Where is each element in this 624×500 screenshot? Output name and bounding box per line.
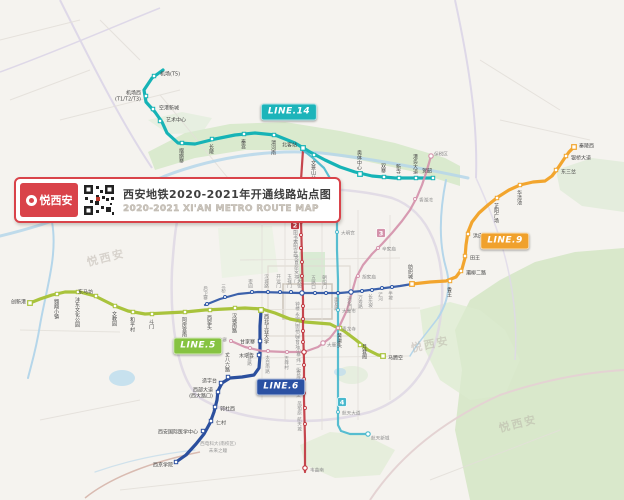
station-label: 半坡 xyxy=(388,290,393,302)
map-title-cn: 西安地铁2020-2021年开通线路站点图 xyxy=(123,186,331,202)
station-marker xyxy=(290,291,293,294)
station-label: 钟楼 xyxy=(295,300,300,312)
station-label: 阿房宫南 xyxy=(181,316,187,337)
station-marker xyxy=(371,289,374,292)
station-label: 空港新城 xyxy=(159,105,179,112)
station-label: 安远门 xyxy=(294,268,299,284)
station-label: 长陵 xyxy=(208,143,214,155)
station-marker xyxy=(233,306,236,309)
station-label: 太白南路 xyxy=(265,354,270,375)
station-label: 科技路 xyxy=(247,351,252,367)
station-marker xyxy=(302,350,306,354)
station-marker xyxy=(158,119,161,122)
station-marker xyxy=(337,309,340,312)
station-marker xyxy=(303,466,307,470)
station-label: 双寨 xyxy=(380,163,386,173)
station-label: 甘家寨 xyxy=(240,339,255,346)
metro-map-page: 机场(T5)机场西(T1/T2/T3)空港新城艺术中心摆旗寨长陵秦宫渭河南北客站… xyxy=(0,0,624,500)
station-label: 秦陵西 xyxy=(579,143,594,150)
station-marker xyxy=(336,231,339,234)
station-marker xyxy=(302,330,305,333)
station-marker xyxy=(113,304,116,307)
watermark-text: 悦西安 xyxy=(85,246,126,269)
station-label: 港务大道 xyxy=(412,153,418,175)
station-marker xyxy=(325,292,328,295)
banner-titles: 西安地铁2020-2021年开通线路站点图 2020-2021 XI'AN ME… xyxy=(123,186,331,214)
station-marker xyxy=(358,172,363,177)
station-label: 北客站 xyxy=(282,142,297,149)
station-label: 东马坊 xyxy=(78,289,93,296)
station-label: 大明宫 xyxy=(341,230,355,237)
qr-code-icon xyxy=(82,183,116,217)
station-marker xyxy=(28,301,33,306)
map-title-en: 2020-2021 XI'AN METRO ROUTE MAP xyxy=(123,204,331,214)
station-marker xyxy=(94,294,97,297)
station-label: 浐河 xyxy=(378,291,383,302)
station-label: 香湖湾 xyxy=(419,197,433,204)
station-label: 青龙寺 xyxy=(342,326,356,333)
station-marker xyxy=(267,350,270,353)
station-label: 辛家庙 xyxy=(382,246,396,253)
station-label: 保税区 xyxy=(434,151,448,158)
station-label: 枣园 xyxy=(248,278,253,290)
station-label: 小寨 xyxy=(296,346,301,357)
station-label: 香王 xyxy=(446,286,452,297)
line-label-5: LINE.5 xyxy=(173,338,222,355)
station-label: 秦宫 xyxy=(240,138,246,150)
station-marker xyxy=(304,407,307,410)
station-marker xyxy=(414,176,417,179)
station-marker xyxy=(272,133,275,136)
station-marker xyxy=(55,292,58,295)
station-marker xyxy=(301,261,304,264)
station-marker xyxy=(429,154,433,158)
station-label: 西安国际医学中心 xyxy=(158,429,198,436)
station-label: 汉城路 xyxy=(264,273,269,289)
station-marker xyxy=(226,375,229,378)
station-marker xyxy=(224,296,227,299)
station-marker xyxy=(300,234,303,237)
station-label: 西北工业大学 xyxy=(263,314,269,344)
station-marker xyxy=(213,405,216,408)
station-label: 汉城南路 xyxy=(231,312,237,334)
station-label: 文教园 xyxy=(111,310,117,327)
station-marker xyxy=(300,247,303,250)
station-marker xyxy=(382,175,385,178)
station-label: 郭杜西 xyxy=(220,406,235,413)
station-marker xyxy=(391,286,394,289)
station-marker xyxy=(257,353,260,356)
logo-text: 悦西安 xyxy=(40,192,73,208)
station-marker xyxy=(180,141,183,144)
station-marker xyxy=(303,364,306,367)
metro-line-6 xyxy=(176,311,261,462)
station-marker xyxy=(301,275,304,278)
station-marker xyxy=(397,176,400,179)
station-marker xyxy=(377,247,380,250)
station-label: 开远门 xyxy=(276,274,281,289)
station-label: 西窑头 xyxy=(206,315,212,331)
station-label: 斗门 xyxy=(148,319,154,330)
station-marker xyxy=(267,291,270,294)
station-label: 大差市 xyxy=(342,308,356,315)
station-label: 月登阁 xyxy=(361,344,367,360)
station-marker xyxy=(366,432,370,436)
station-marker xyxy=(312,153,315,156)
line-number-badge-text: 3 xyxy=(379,229,384,237)
station-marker xyxy=(518,183,521,186)
station-marker xyxy=(564,154,567,157)
station-label: 航天城 xyxy=(297,416,302,432)
station-label: 翱翔小镇 xyxy=(53,298,59,320)
station-label: 凤栖原 xyxy=(297,401,302,415)
station-marker xyxy=(337,327,340,330)
station-marker xyxy=(216,390,219,393)
station-label: 五路口 xyxy=(311,275,316,290)
station-label: 丈八六路 xyxy=(224,351,230,373)
station-label: 西京学院 xyxy=(153,462,173,469)
station-label: 机场西(T1/T2/T3) xyxy=(115,90,141,103)
station-marker xyxy=(230,340,233,343)
station-marker xyxy=(144,94,147,97)
line-label-14: LINE.14 xyxy=(261,104,317,121)
station-label: 胡家庙 xyxy=(362,274,376,281)
title-banner: 悦西安 西安地铁2020-2021年开通线路站点图 2 xyxy=(14,177,341,223)
line-label-9: LINE.9 xyxy=(480,233,529,250)
station-marker xyxy=(495,196,498,199)
station-label: 三桥 xyxy=(221,284,226,295)
yuexian-logo: 悦西安 xyxy=(20,183,78,217)
station-marker xyxy=(219,381,222,384)
station-label: 机场(T5) xyxy=(160,71,180,78)
station-label: 仁村 xyxy=(216,420,226,427)
station-label: 西部大道(西大路口) xyxy=(189,387,213,400)
station-marker xyxy=(337,292,340,295)
station-marker xyxy=(381,287,384,290)
station-marker xyxy=(302,341,305,344)
line-label-6: LINE.6 xyxy=(256,379,305,396)
station-marker xyxy=(208,308,211,311)
station-marker xyxy=(361,290,364,293)
station-label: 航天大道 xyxy=(342,410,361,417)
station-marker xyxy=(286,351,289,354)
station-label: 龙首原 xyxy=(294,254,299,269)
station-label: 东三岔 xyxy=(561,169,576,176)
station-marker xyxy=(431,176,434,179)
station-label: 华清池 xyxy=(516,189,522,205)
station-marker xyxy=(357,275,360,278)
station-marker xyxy=(209,419,212,422)
station-label: 朝阳门 xyxy=(322,275,327,290)
map-canvas: 机场(T5)机场西(T1/T2/T3)空港新城艺术中心摆旗寨长陵秦宫渭河南北客站… xyxy=(0,0,624,500)
station-marker xyxy=(210,137,213,140)
station-marker xyxy=(249,347,252,350)
station-label: 造字台 xyxy=(202,378,217,385)
station-marker xyxy=(183,310,186,313)
station-marker xyxy=(459,269,462,272)
station-marker xyxy=(321,341,325,345)
area-label: 西电科大(南校区) xyxy=(200,440,236,447)
station-marker xyxy=(301,146,306,151)
station-marker xyxy=(463,254,466,257)
line-number-badge-text: 4 xyxy=(340,398,345,406)
station-marker xyxy=(314,292,317,295)
station-marker xyxy=(448,279,451,282)
station-marker xyxy=(304,423,307,426)
station-marker xyxy=(206,303,209,306)
station-label: 银桥大道 xyxy=(571,155,591,162)
station-marker xyxy=(414,198,417,201)
station-label: 长乐坡 xyxy=(368,293,373,309)
station-label: 芷阳广场 xyxy=(493,202,499,224)
station-marker xyxy=(251,291,254,294)
station-marker xyxy=(242,132,245,135)
station-label: 大雁塔 xyxy=(327,342,341,349)
station-marker xyxy=(174,460,177,463)
station-marker xyxy=(381,354,386,359)
station-marker xyxy=(152,74,155,77)
station-label: 田王 xyxy=(470,256,480,262)
station-label: 航天新城 xyxy=(371,435,390,442)
station-marker xyxy=(410,282,415,287)
station-label: 沣东文化公园 xyxy=(74,296,80,328)
station-label: 艺术中心 xyxy=(166,117,186,124)
station-label: 摆旗寨 xyxy=(178,147,184,163)
station-label: 玉祥门 xyxy=(287,274,292,289)
station-marker xyxy=(131,310,134,313)
station-label: 奥体中心 xyxy=(356,149,362,170)
station-marker xyxy=(150,312,153,315)
station-label: 马腾空 xyxy=(388,355,403,362)
station-marker xyxy=(259,308,264,313)
station-label: 贺韶 xyxy=(422,168,432,175)
station-marker xyxy=(337,411,340,414)
station-label: 灞柳二路 xyxy=(466,270,486,277)
station-marker xyxy=(300,291,304,295)
station-marker xyxy=(258,339,261,342)
station-label: 韦曲南 xyxy=(310,467,324,474)
station-label: 纺织城 xyxy=(407,263,413,280)
station-label: 渭河南 xyxy=(270,139,276,155)
station-marker xyxy=(572,145,577,150)
logo-icon xyxy=(26,195,37,206)
station-marker xyxy=(466,232,469,235)
station-marker xyxy=(201,429,204,432)
station-label: 后卫寨 xyxy=(203,285,208,300)
station-label: 和平村 xyxy=(129,316,135,332)
station-label: 吉祥村 xyxy=(284,356,289,370)
station-marker xyxy=(279,291,282,294)
station-marker xyxy=(151,107,154,110)
station-marker xyxy=(554,168,557,171)
station-marker xyxy=(349,290,353,294)
station-label: 万寿路 xyxy=(358,295,363,310)
station-marker xyxy=(302,305,305,308)
area-label: 未来之瞳 xyxy=(209,447,228,454)
station-marker xyxy=(302,318,305,321)
station-label: 新寺 xyxy=(395,163,401,174)
station-label: 创新港 xyxy=(11,299,26,306)
